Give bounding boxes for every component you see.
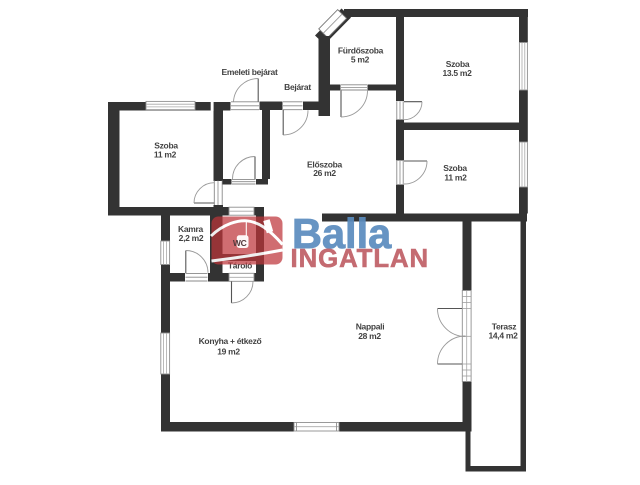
svg-text:11 m2: 11 m2 (444, 173, 467, 183)
svg-text:Nappali: Nappali (356, 322, 385, 332)
svg-text:Konyha + étkező: Konyha + étkező (199, 336, 262, 346)
svg-text:26 m2: 26 m2 (313, 168, 336, 178)
svg-text:19 m2: 19 m2 (217, 347, 240, 357)
svg-text:5 m2: 5 m2 (351, 54, 370, 64)
svg-text:Bejárat: Bejárat (284, 82, 311, 92)
svg-text:2,2 m2: 2,2 m2 (179, 233, 204, 243)
svg-text:WC: WC (233, 238, 247, 248)
svg-text:INGATLAN: INGATLAN (291, 245, 430, 273)
svg-text:Emeleti bejárat: Emeleti bejárat (222, 67, 278, 77)
svg-text:28 m2: 28 m2 (358, 331, 381, 341)
svg-text:Szoba: Szoba (443, 163, 467, 173)
svg-text:13.5 m2: 13.5 m2 (442, 68, 472, 78)
svg-text:14,4 m2: 14,4 m2 (488, 331, 518, 341)
svg-text:11 m2: 11 m2 (154, 150, 177, 160)
